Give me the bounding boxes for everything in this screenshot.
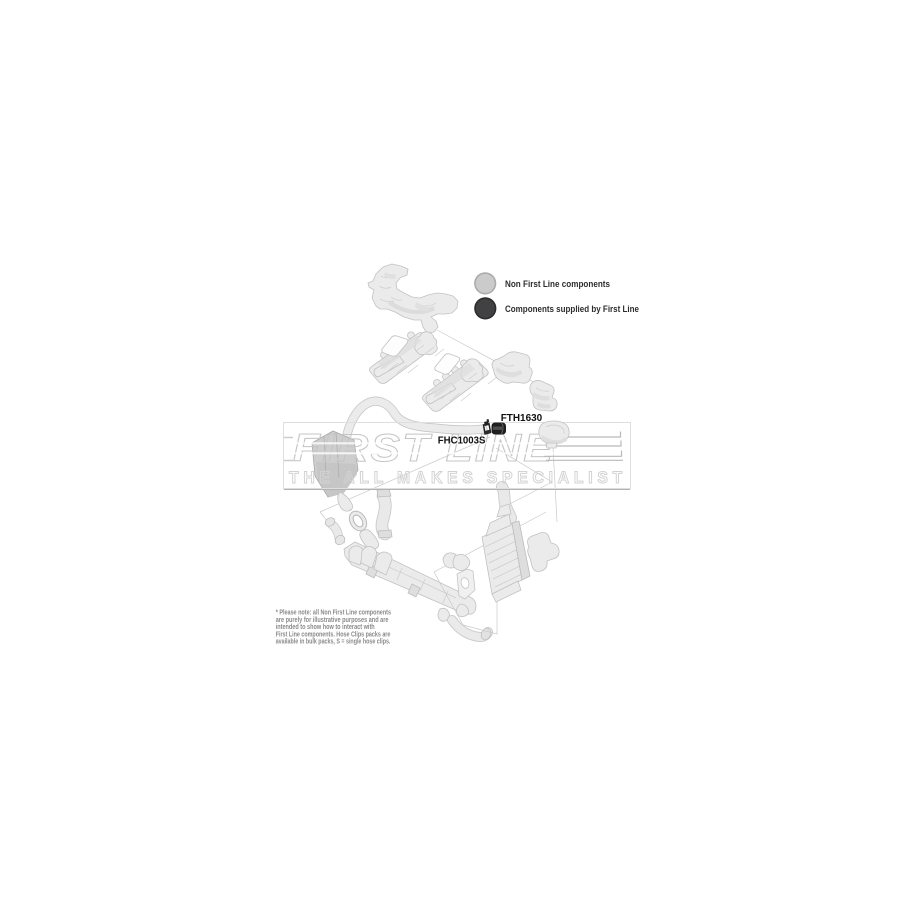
svg-text:THE ALL MAKES SPECIALIST: THE ALL MAKES SPECIALIST	[289, 469, 627, 487]
svg-text:FTH1630: FTH1630	[501, 412, 543, 424]
svg-text:available in bulk packs, S = s: available in bulk packs, S = single hose…	[276, 637, 391, 646]
svg-text:Non First Line components: Non First Line components	[505, 279, 610, 289]
svg-text:Components supplied by First L: Components supplied by First Line	[505, 304, 639, 314]
svg-text:FHC1003S: FHC1003S	[438, 435, 486, 447]
svg-text:FIRST LINE: FIRST LINE	[293, 427, 555, 470]
